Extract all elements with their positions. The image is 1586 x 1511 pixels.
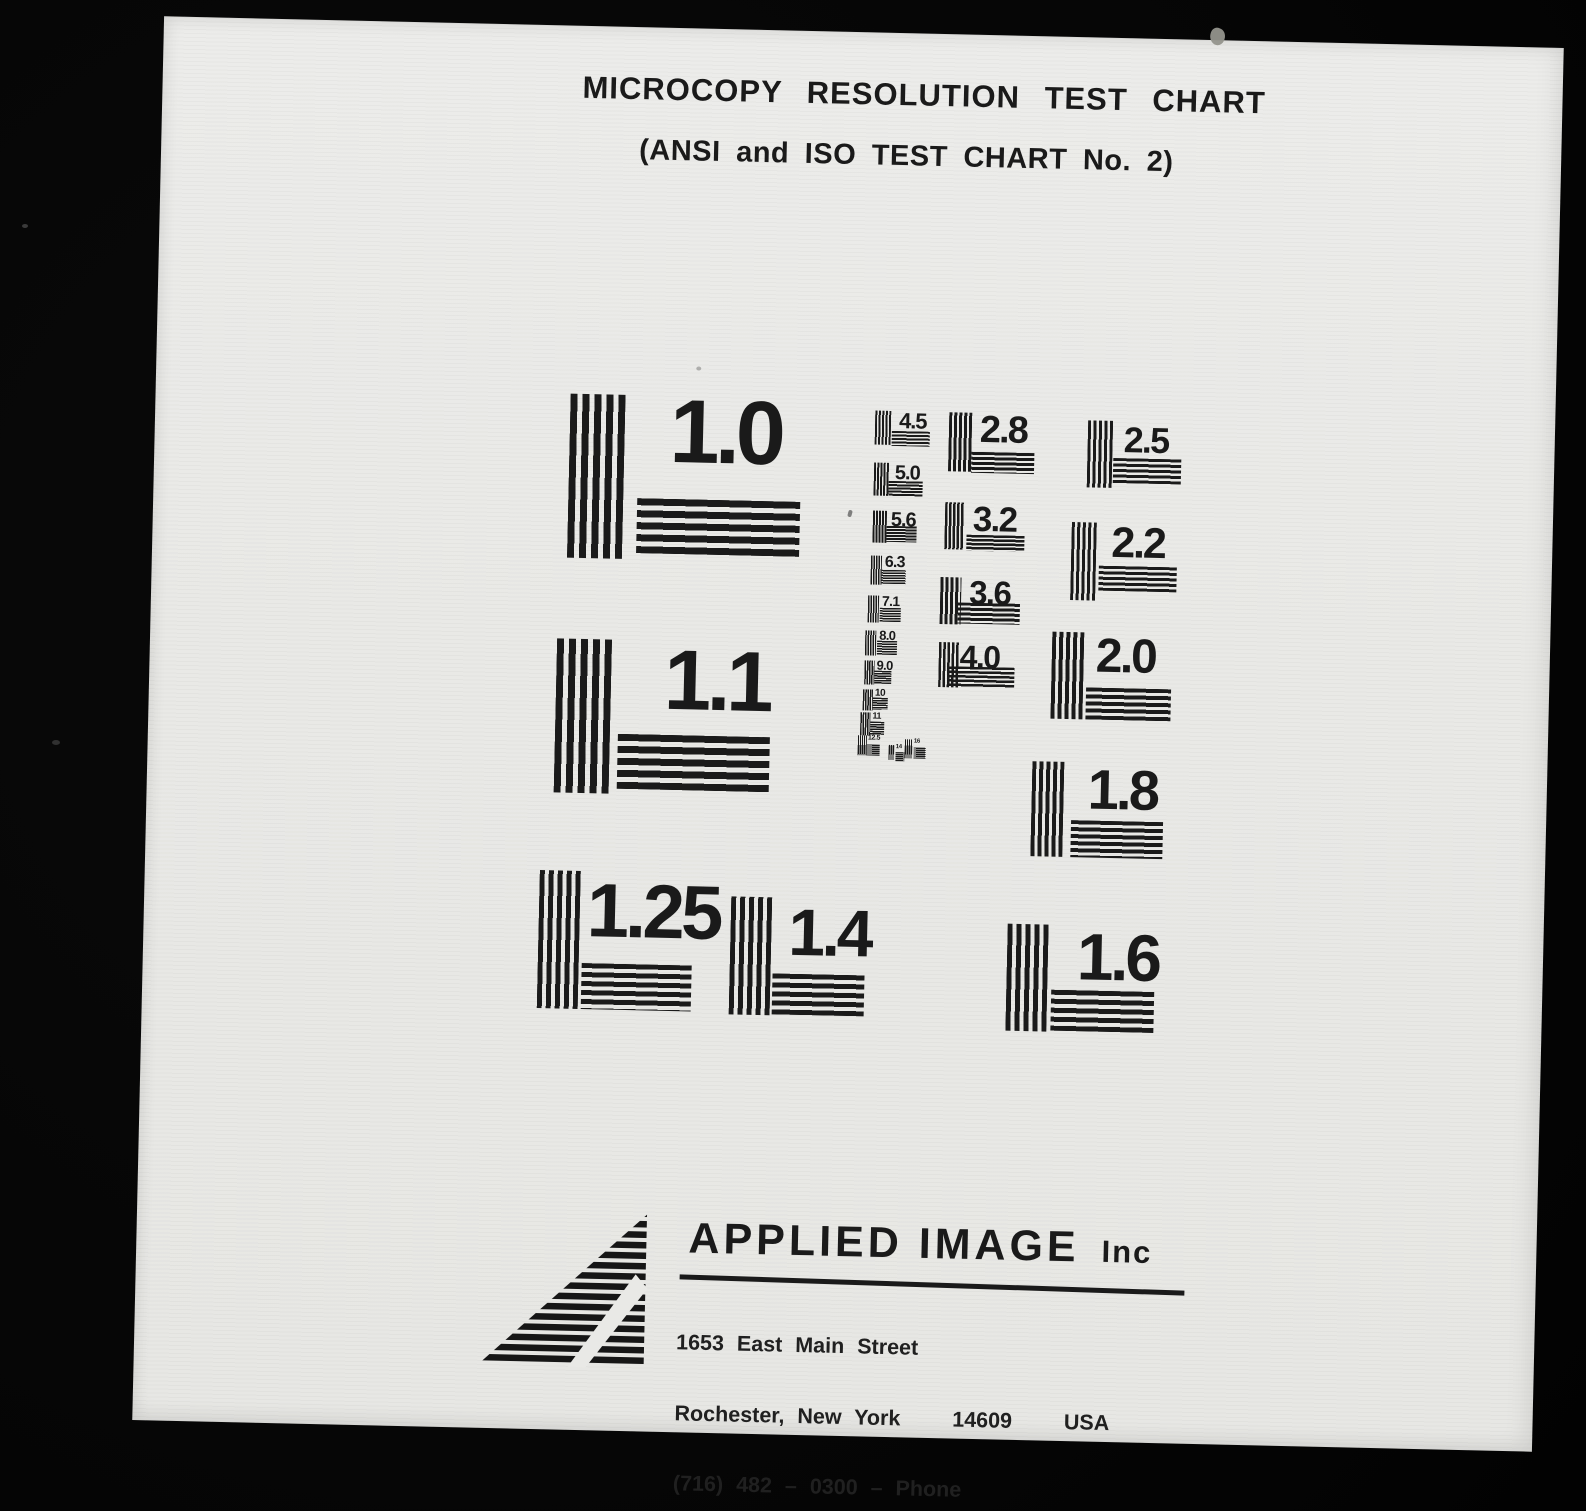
vertical-bar-group — [870, 555, 882, 584]
horizontal-bar-group — [873, 698, 888, 710]
vertical-bar-group — [860, 712, 871, 735]
horizontal-bar-group — [880, 608, 901, 622]
vertical-bar-group — [888, 745, 894, 760]
vertical-bar-group — [1005, 924, 1048, 1032]
phone-number: (716) 482 – 0300 – Phone — [673, 1472, 1108, 1505]
resolution-value-label: 14 — [896, 745, 902, 750]
vertical-bar-group — [948, 412, 972, 472]
test-chart-page: MICROCOPY RESOLUTION TEST CHART (ANSI an… — [132, 16, 1563, 1451]
vertical-bar-group — [1030, 761, 1064, 857]
vertical-bar-group — [864, 660, 875, 684]
vertical-bar-group — [875, 411, 892, 445]
address-city: Rochester, New York 14609 USA — [674, 1402, 1109, 1435]
horizontal-bar-group — [1113, 458, 1182, 485]
dust-speck — [52, 740, 60, 745]
horizontal-bar-group — [1098, 566, 1177, 593]
resolution-value-label: 4.0 — [959, 645, 999, 671]
resolution-value-label: 6.3 — [885, 557, 905, 570]
vertical-bar-group — [944, 502, 964, 549]
horizontal-bar-group — [971, 452, 1034, 474]
horizontal-bar-group — [867, 744, 880, 755]
paper-smudge — [696, 366, 701, 370]
resolution-value-label: 7.1 — [882, 596, 900, 608]
vertical-bar-group — [1050, 632, 1084, 720]
resolution-value-label: 8.0 — [879, 631, 895, 642]
resolution-value-label: 2.5 — [1123, 426, 1168, 456]
vertical-bar-group — [567, 394, 626, 559]
horizontal-bar-group — [881, 570, 905, 585]
vertical-bar-group — [873, 463, 889, 496]
vertical-bar-group — [868, 595, 880, 622]
vertical-bar-group — [863, 689, 873, 710]
vertical-bar-group — [1087, 420, 1114, 488]
dust-speck — [22, 224, 28, 228]
horizontal-bar-group — [913, 747, 925, 758]
company-name-text: APPLIED IMAGE — [688, 1215, 1080, 1272]
resolution-value-label: 3.2 — [973, 506, 1017, 535]
resolution-value-label: 5.6 — [891, 512, 916, 529]
resolution-value-label: 1.1 — [663, 647, 770, 717]
resolution-value-label: 1.4 — [788, 906, 871, 961]
horizontal-bar-group — [870, 722, 884, 735]
vertical-bar-group — [1070, 522, 1097, 601]
vertical-bar-group — [872, 511, 887, 543]
horizontal-bar-group — [1050, 990, 1154, 1033]
company-name: APPLIED IMAGEInc — [688, 1215, 1153, 1275]
horizontal-bar-group — [617, 734, 770, 792]
resolution-value-label: 1.0 — [669, 396, 782, 471]
vertical-bar-group — [537, 870, 581, 1009]
vertical-bar-group — [904, 739, 912, 758]
resolution-value-label: 1.6 — [1076, 930, 1159, 985]
company-suffix-text: Inc — [1101, 1234, 1153, 1270]
resolution-value-label: 4.5 — [899, 412, 927, 430]
resolution-value-label: 3.6 — [969, 580, 1011, 607]
horizontal-bar-group — [772, 973, 865, 1016]
resolution-value-label: 12.5 — [868, 735, 880, 741]
resolution-value-label: 5.0 — [895, 465, 920, 482]
applied-image-logo-icon — [474, 1207, 653, 1371]
resolution-value-label: 10 — [875, 690, 885, 698]
resolution-value-label: 9.0 — [876, 661, 892, 672]
address-block: 1653 East Main Street Rochester, New Yor… — [670, 1284, 1112, 1511]
page-title: MICROCOPY RESOLUTION TEST CHART — [582, 70, 1266, 121]
resolution-value-label: 2.0 — [1095, 638, 1155, 678]
horizontal-bar-group — [1085, 687, 1171, 721]
vertical-bar-group — [729, 896, 773, 1015]
address-street: 1653 East Main Street — [676, 1331, 1111, 1364]
horizontal-bar-group — [895, 752, 904, 761]
page-subtitle: (ANSI and ISO TEST CHART No. 2) — [639, 134, 1174, 179]
vertical-bar-group — [858, 735, 867, 755]
horizontal-bar-group — [1070, 820, 1163, 859]
resolution-value-label: 16 — [914, 739, 920, 744]
vertical-bar-group — [554, 638, 612, 793]
scanner-background: MICROCOPY RESOLUTION TEST CHART (ANSI an… — [0, 0, 1586, 1511]
paper-smudge — [847, 510, 853, 518]
horizontal-bar-group — [636, 498, 800, 557]
resolution-value-label: 1.25 — [586, 881, 720, 945]
resolution-value-label: 1.8 — [1087, 767, 1157, 813]
horizontal-bar-group — [581, 963, 692, 1011]
resolution-value-label: 11 — [872, 713, 881, 720]
resolution-value-label: 2.2 — [1111, 526, 1165, 562]
vertical-bar-group — [865, 630, 877, 655]
resolution-value-label: 2.8 — [980, 415, 1028, 446]
